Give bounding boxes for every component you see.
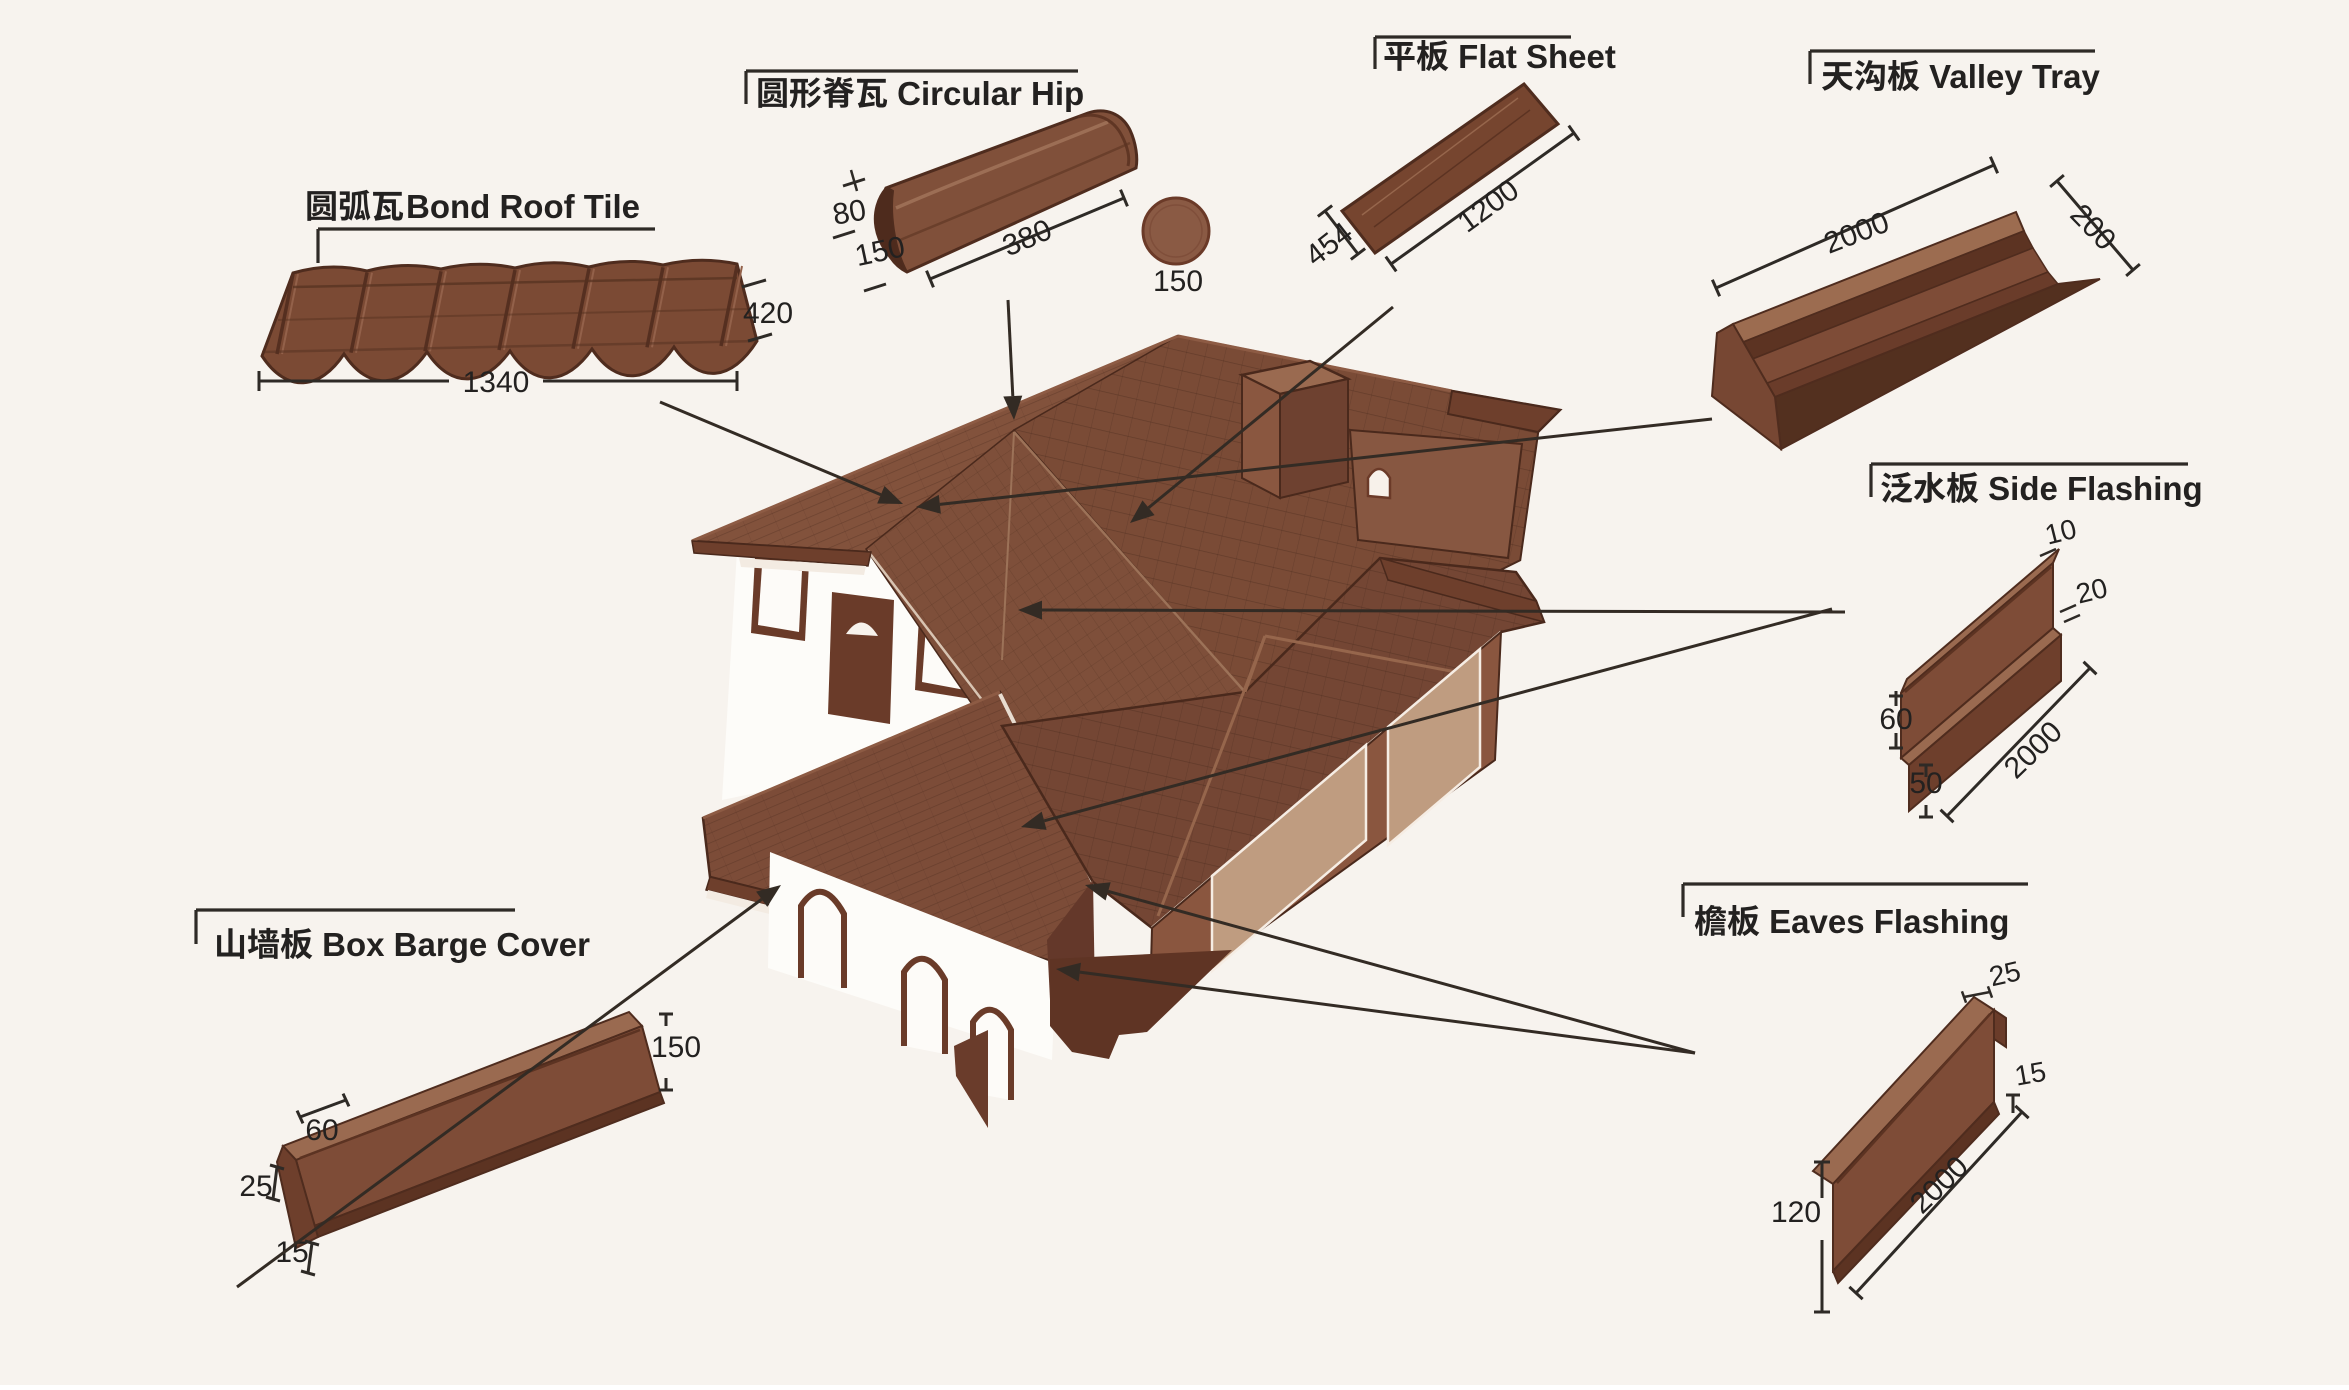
svg-text:150: 150 xyxy=(1153,265,1203,298)
svg-text:15: 15 xyxy=(2012,1056,2048,1092)
svg-text:120: 120 xyxy=(1771,1196,1821,1229)
svg-text:Box Barge Cover: Box Barge Cover xyxy=(313,926,590,963)
svg-text:60: 60 xyxy=(305,1114,338,1147)
svg-text:Circular Hip: Circular Hip xyxy=(888,75,1084,112)
svg-text:Bond Roof Tile: Bond Roof Tile xyxy=(406,188,640,225)
svg-text:Eaves Flashing: Eaves Flashing xyxy=(1760,903,2009,940)
svg-text:Valley Tray: Valley Tray xyxy=(1920,58,2100,95)
svg-text:150: 150 xyxy=(651,1031,701,1064)
svg-text:80: 80 xyxy=(830,193,869,231)
svg-text:1340: 1340 xyxy=(463,366,530,399)
svg-text:15: 15 xyxy=(275,1236,308,1269)
svg-text:Flat Sheet: Flat Sheet xyxy=(1449,38,1616,75)
svg-text:60: 60 xyxy=(1879,703,1912,736)
svg-text:420: 420 xyxy=(743,297,793,330)
svg-text:Side Flashing: Side Flashing xyxy=(1979,470,2203,507)
